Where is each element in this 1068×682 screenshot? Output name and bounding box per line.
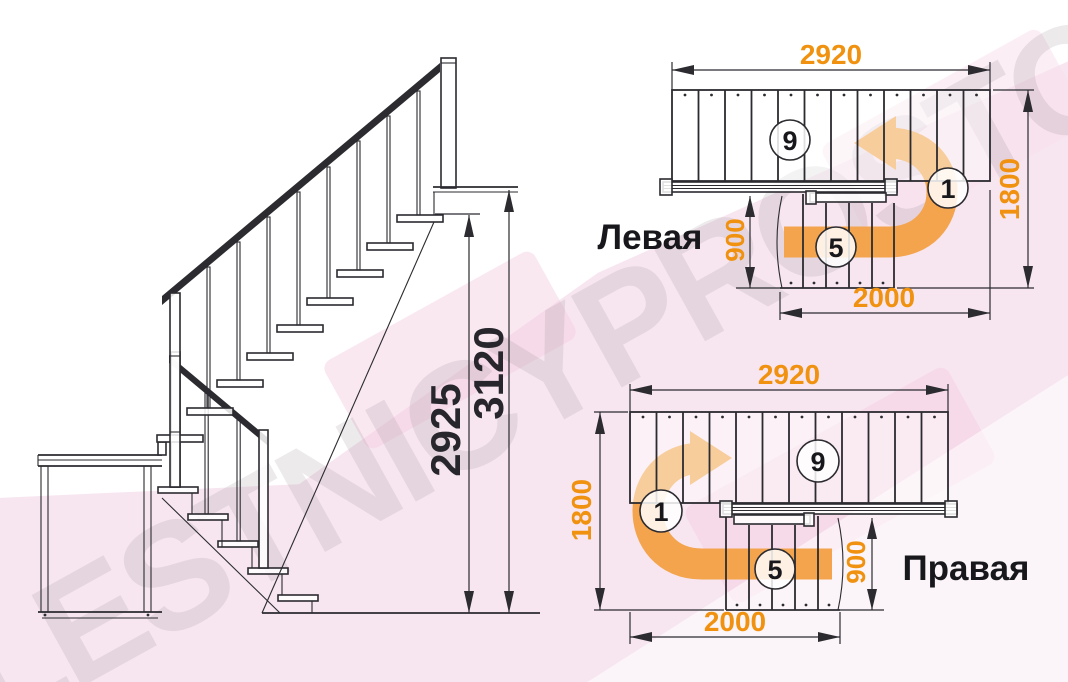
- step-number: 5: [828, 233, 843, 263]
- step-number: 1: [940, 174, 955, 204]
- baluster: [297, 192, 300, 325]
- plan-right-view: 2920 1800 900 2000: [566, 359, 1029, 644]
- baluster: [357, 141, 360, 270]
- dim-handrail-height: 2925: [422, 383, 469, 476]
- step-marker-5: 5: [816, 227, 856, 267]
- main-handrail: [162, 63, 440, 305]
- lower-handrail: [169, 355, 267, 445]
- plan-left-dim-landing: 900: [720, 218, 750, 261]
- landing-edge: [660, 179, 897, 204]
- landing-platform: [38, 455, 162, 618]
- technical-drawing: 2925 3120: [0, 0, 1068, 682]
- step-number: 9: [782, 126, 797, 156]
- step-marker-9: 9: [797, 440, 839, 482]
- break-line: [777, 196, 782, 288]
- plan-left-view: 2920 1800 900 2000: [598, 39, 1034, 320]
- staircase-drawing-page: LESTNICYPROSTO.RU: [0, 0, 1068, 682]
- plan-right-dim-depth: 1800: [566, 479, 597, 541]
- top-newel-post: [441, 58, 456, 188]
- elevation-view: 2925 3120: [38, 58, 540, 618]
- railing-post: [259, 430, 268, 568]
- elevation-dimensions: 2925 3120: [422, 190, 514, 613]
- step-marker-1: 1: [640, 490, 682, 532]
- step-number: 9: [810, 447, 825, 477]
- baluster: [327, 167, 330, 298]
- plan-left-dim-depth: 1800: [994, 158, 1025, 220]
- step-marker-1: 1: [928, 168, 968, 208]
- plan-right-dim-lower-flight: 2000: [704, 606, 766, 637]
- plan-right-dim-landing: 900: [841, 540, 871, 583]
- baluster: [237, 242, 240, 380]
- plan-left-dim-lower-flight: 2000: [853, 282, 915, 313]
- step-marker-9: 9: [770, 120, 810, 160]
- baluster: [237, 417, 240, 541]
- baluster: [417, 91, 420, 215]
- plan-left-label: Левая: [598, 218, 703, 257]
- step-number: 5: [767, 555, 782, 585]
- plan-right-dim-width: 2920: [758, 359, 820, 390]
- plan-right-label: Правая: [903, 549, 1030, 588]
- main-flight: [157, 58, 518, 613]
- baluster: [267, 217, 270, 353]
- baluster: [207, 267, 210, 408]
- step-number: 1: [653, 497, 668, 527]
- step-marker-5: 5: [755, 549, 795, 589]
- bottom-post: [170, 293, 180, 487]
- dim-total-height: 3120: [465, 326, 512, 419]
- baluster: [387, 116, 390, 243]
- first-flight: [158, 352, 318, 613]
- stringer: [262, 222, 434, 613]
- plan-left-dim-width: 2920: [800, 39, 862, 70]
